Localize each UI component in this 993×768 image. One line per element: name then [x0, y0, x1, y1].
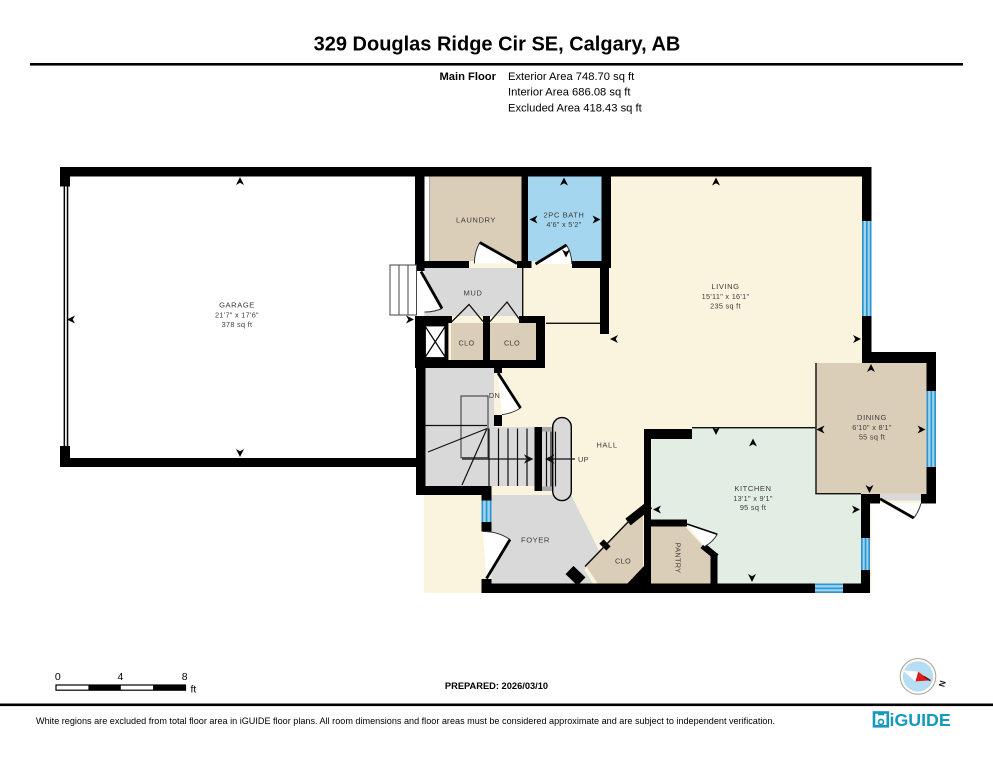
svg-text:8: 8	[182, 671, 188, 683]
svg-text:Main Floor: Main Floor	[439, 71, 496, 83]
svg-text:iGUIDE: iGUIDE	[890, 710, 951, 730]
svg-text:CLO: CLO	[504, 339, 520, 348]
svg-text:LAUNDRY: LAUNDRY	[456, 216, 496, 225]
svg-text:0: 0	[55, 671, 61, 683]
svg-text:CLO: CLO	[459, 339, 475, 348]
svg-text:ft: ft	[191, 684, 197, 696]
svg-text:329 Douglas Ridge Cir SE, Calg: 329 Douglas Ridge Cir SE, Calgary, AB	[314, 34, 681, 56]
svg-text:N: N	[937, 680, 948, 689]
svg-text:Excluded Area 418.43 sq ft: Excluded Area 418.43 sq ft	[508, 102, 643, 114]
svg-text:21'7" x 17'6": 21'7" x 17'6"	[215, 311, 259, 320]
svg-text:GARAGE: GARAGE	[219, 301, 255, 310]
svg-text:DN: DN	[489, 391, 500, 400]
svg-text:DINING: DINING	[857, 413, 887, 422]
svg-text:4'6" x 5'2": 4'6" x 5'2"	[546, 220, 581, 229]
svg-text:Interior Area 686.08 sq ft: Interior Area 686.08 sq ft	[508, 87, 631, 99]
svg-text:2PC BATH: 2PC BATH	[544, 211, 585, 220]
svg-text:13'1" x 9'1": 13'1" x 9'1"	[733, 494, 773, 503]
svg-text:White regions are excluded fro: White regions are excluded from total fl…	[36, 716, 775, 726]
svg-text:95 sq ft: 95 sq ft	[740, 503, 766, 512]
svg-text:378 sq ft: 378 sq ft	[222, 320, 253, 329]
svg-text:LIVING: LIVING	[711, 282, 739, 291]
svg-text:235 sq ft: 235 sq ft	[710, 302, 741, 311]
svg-text:PANTRY: PANTRY	[674, 543, 683, 574]
svg-text:HALL: HALL	[596, 441, 617, 450]
svg-text:MUD: MUD	[464, 289, 483, 298]
svg-text:KITCHEN: KITCHEN	[734, 484, 771, 493]
svg-text:PREPARED: 2026/03/10: PREPARED: 2026/03/10	[445, 681, 548, 691]
svg-text:6'10" x 8'1": 6'10" x 8'1"	[852, 423, 892, 432]
svg-text:FOYER: FOYER	[521, 536, 550, 545]
svg-text:UP: UP	[578, 455, 589, 464]
svg-text:15'11" x 16'1": 15'11" x 16'1"	[702, 292, 750, 301]
svg-text:4: 4	[117, 671, 123, 683]
svg-text:CLO: CLO	[615, 557, 631, 566]
svg-text:55 sq ft: 55 sq ft	[859, 433, 885, 442]
svg-text:Exterior Area 748.70 sq ft: Exterior Area 748.70 sq ft	[508, 71, 635, 83]
